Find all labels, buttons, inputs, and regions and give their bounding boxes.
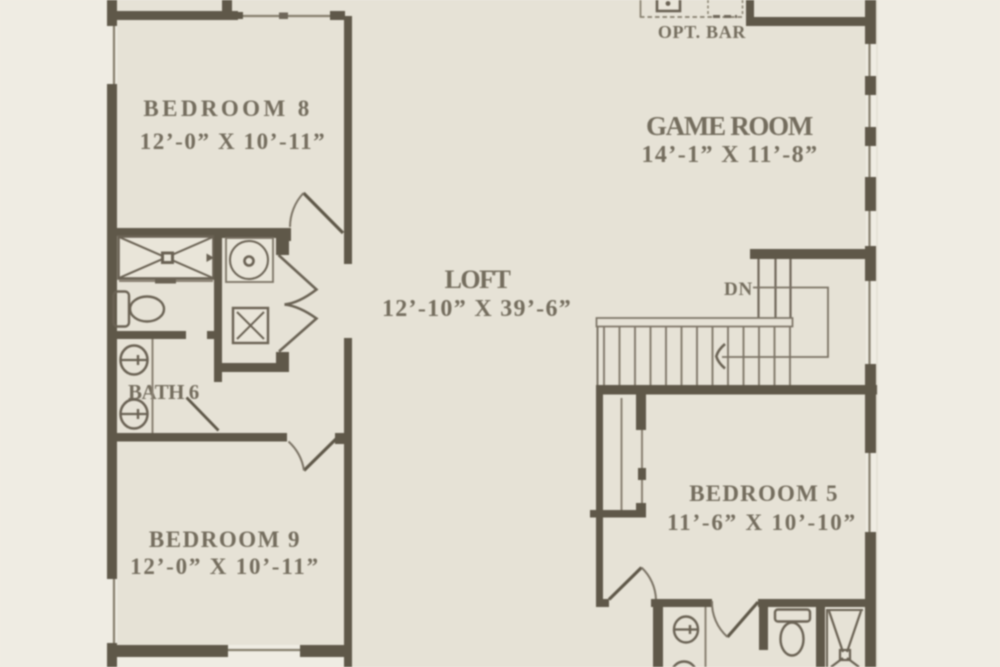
svg-text:OPT. BAR: OPT. BAR [658, 22, 747, 42]
svg-text:BEDROOM 9: BEDROOM 9 [149, 527, 301, 552]
svg-text:14’-1” X 11’-8”: 14’-1” X 11’-8” [642, 142, 819, 168]
svg-text:LOFT: LOFT [445, 265, 511, 294]
svg-text:DN: DN [724, 279, 753, 300]
svg-text:12’-10” X 39’-6”: 12’-10” X 39’-6” [382, 296, 572, 322]
svg-text:GAME ROOM: GAME ROOM [646, 111, 813, 141]
svg-text:BEDROOM 5: BEDROOM 5 [689, 481, 838, 506]
svg-text:BEDROOM 8: BEDROOM 8 [143, 96, 312, 121]
svg-text:11’-6” X 10’-10”: 11’-6” X 10’-10” [667, 510, 857, 535]
svg-text:12’-0” X 10’-11”: 12’-0” X 10’-11” [140, 129, 327, 154]
svg-text:12’-0” X 10’-11”: 12’-0” X 10’-11” [130, 554, 320, 579]
